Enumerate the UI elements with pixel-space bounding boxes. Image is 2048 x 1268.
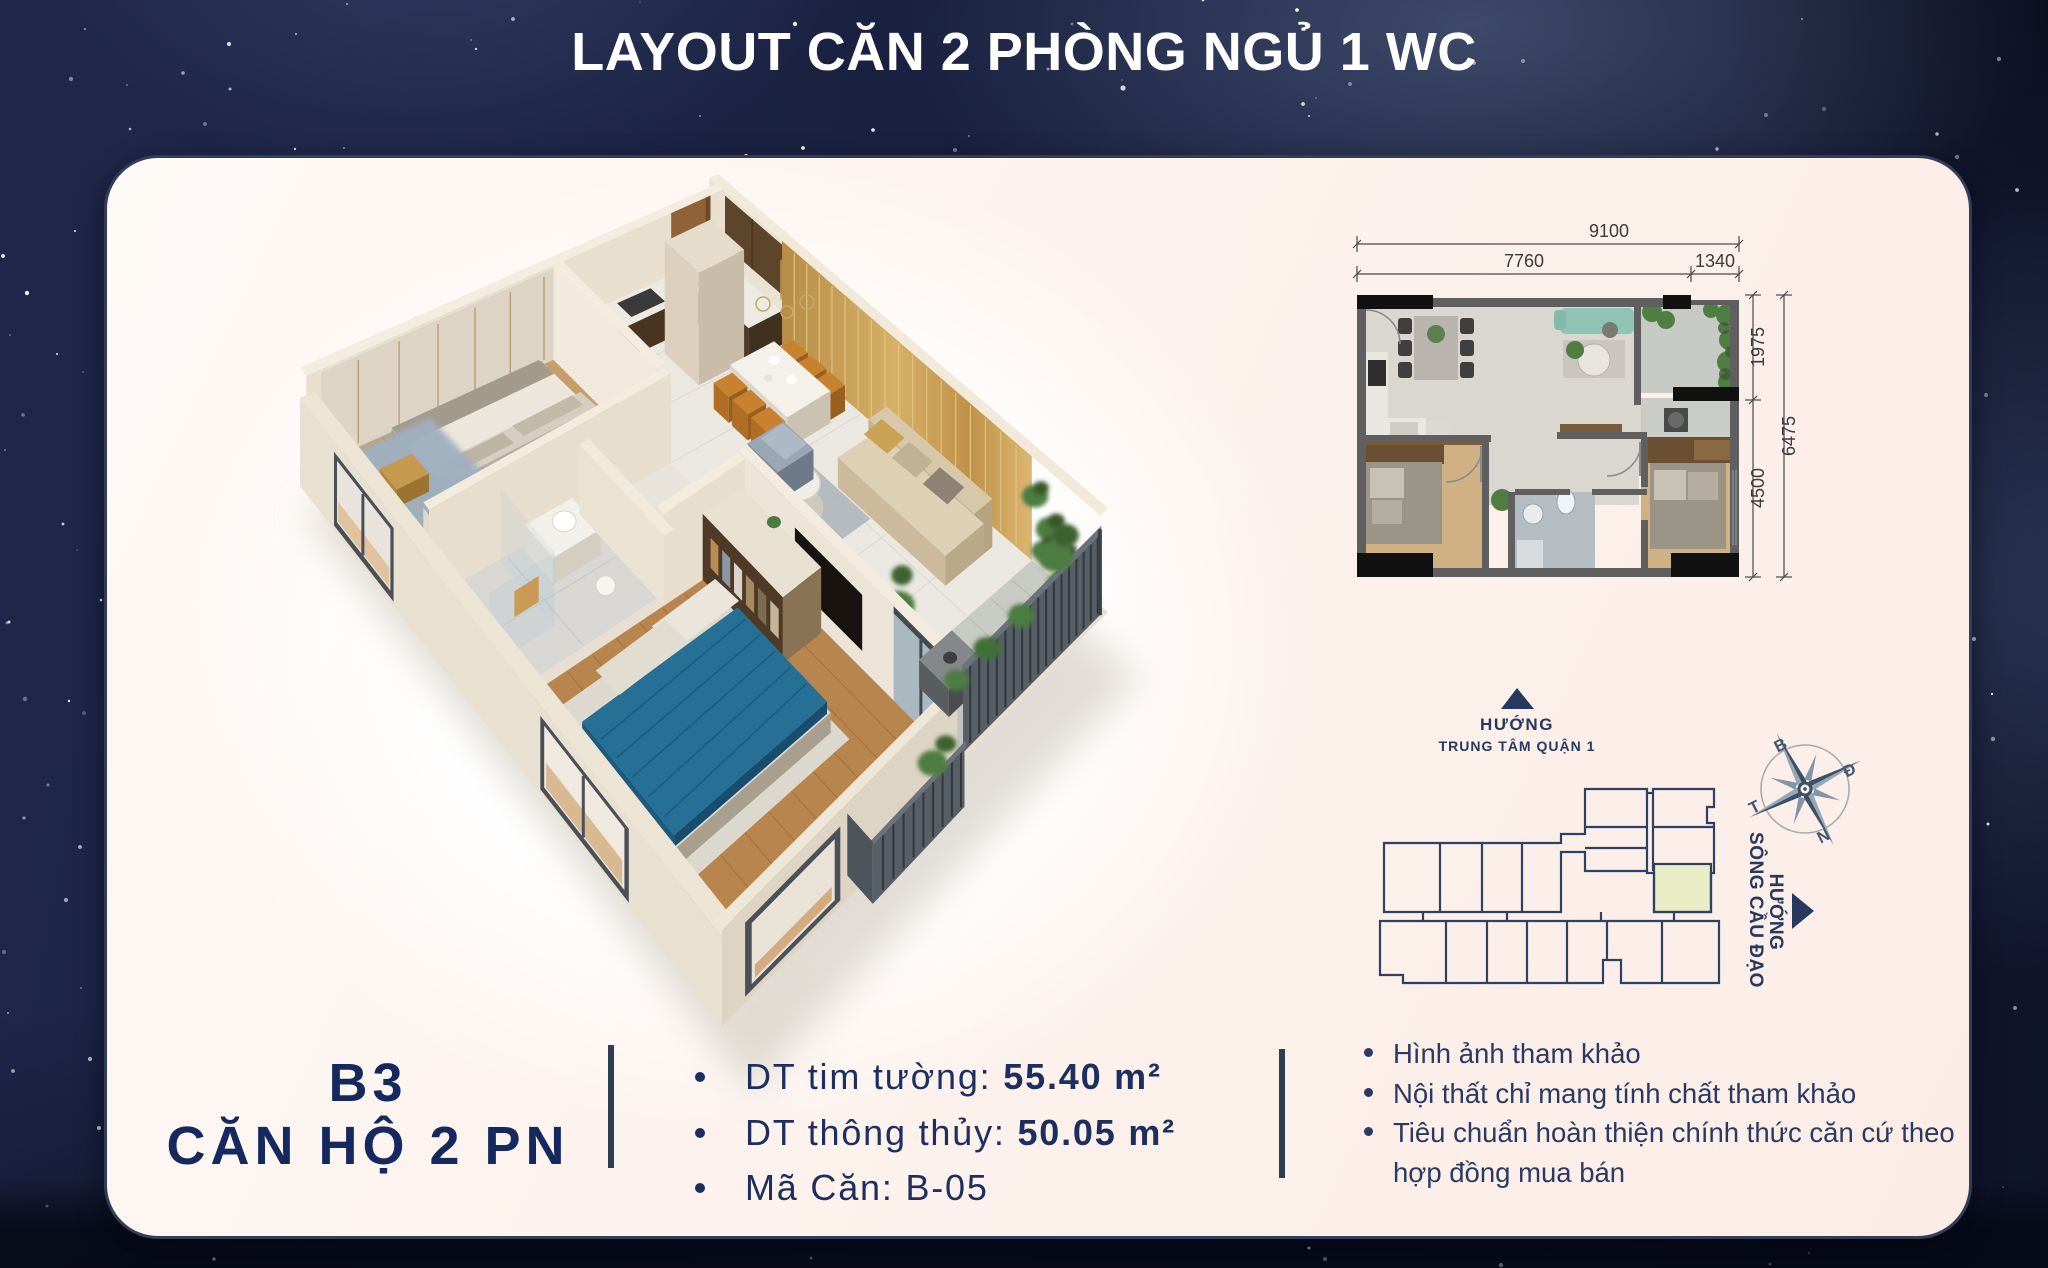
svg-text:HƯỚNG: HƯỚNG xyxy=(1480,715,1554,734)
svg-text:T: T xyxy=(1746,797,1763,818)
svg-text:SÔNG CẦU ĐẠO: SÔNG CẦU ĐẠO xyxy=(1745,832,1767,988)
svg-text:HƯỚNG: HƯỚNG xyxy=(1765,874,1787,951)
svg-text:TRUNG TÂM QUẬN 1: TRUNG TÂM QUẬN 1 xyxy=(1439,737,1596,754)
svg-text:N: N xyxy=(1814,826,1833,847)
